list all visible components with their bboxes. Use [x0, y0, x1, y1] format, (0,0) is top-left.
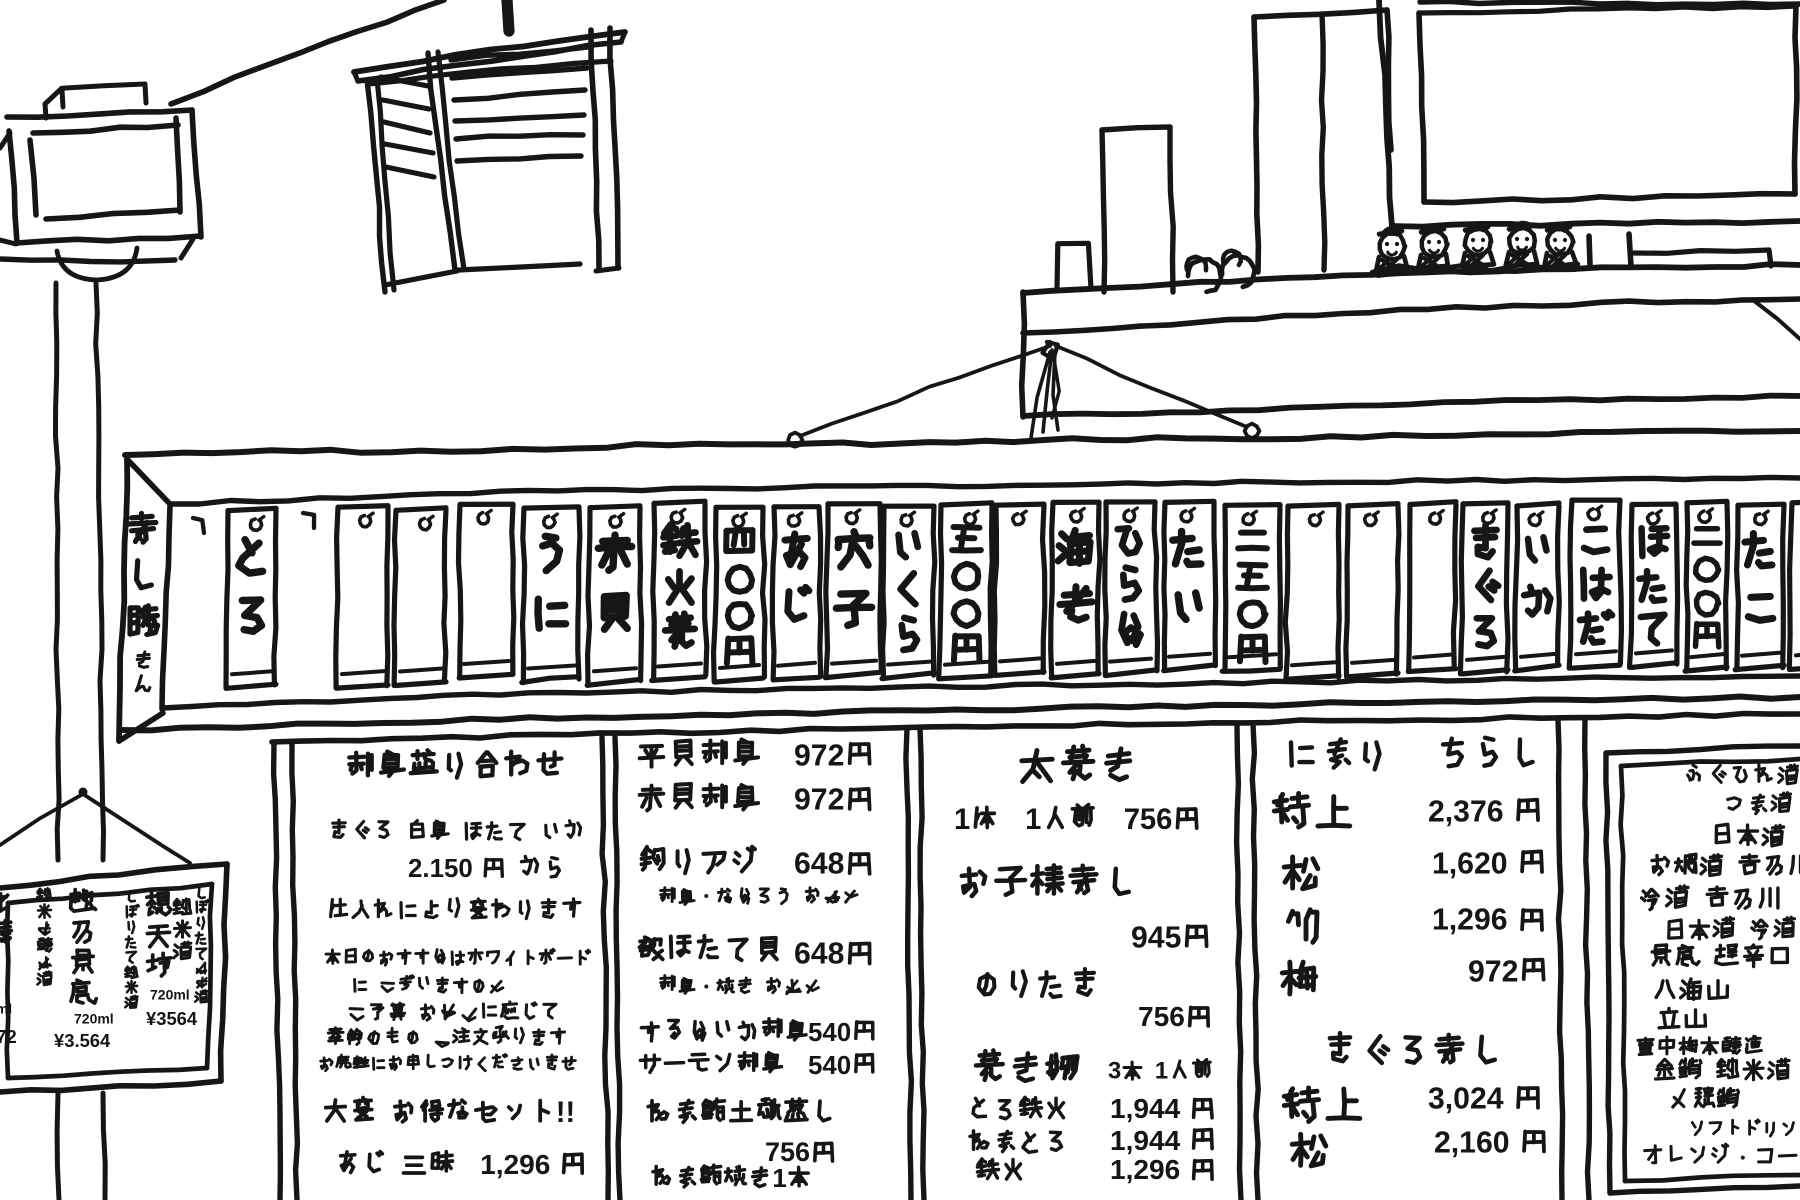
svg-text:1,944: 1,944: [1110, 1125, 1181, 1156]
svg-text:972: 972: [794, 784, 844, 817]
svg-text:1: 1: [1025, 804, 1041, 836]
svg-text:1: 1: [1155, 1057, 1168, 1084]
svg-text:0ml: 0ml: [0, 1000, 12, 1016]
svg-text:1: 1: [772, 1165, 786, 1193]
svg-text:1,296: 1,296: [480, 1149, 550, 1180]
svg-text:972: 972: [794, 740, 844, 773]
svg-text:1,296: 1,296: [1432, 904, 1508, 937]
svg-text:720ml: 720ml: [74, 1010, 114, 1026]
svg-text:¥3564: ¥3564: [146, 1008, 198, 1029]
svg-text:2.150: 2.150: [408, 855, 473, 883]
svg-text:3,024: 3,024: [1428, 1083, 1504, 1116]
svg-text:945: 945: [1131, 922, 1181, 955]
svg-text:3: 3: [1108, 1057, 1121, 1084]
svg-text:672: 672: [0, 1026, 17, 1047]
svg-text:648: 648: [794, 848, 844, 881]
svg-text:972: 972: [1468, 956, 1518, 989]
svg-text:1: 1: [954, 804, 970, 836]
svg-text:1,944: 1,944: [1110, 1093, 1181, 1124]
svg-text:1,296: 1,296: [1110, 1154, 1180, 1185]
svg-text:648: 648: [794, 938, 844, 971]
svg-text:756: 756: [1138, 1001, 1185, 1032]
svg-text:¥3.564: ¥3.564: [54, 1030, 111, 1051]
svg-text:2,160: 2,160: [1434, 1127, 1510, 1160]
svg-text:!!: !!: [556, 1097, 575, 1129]
svg-text:756: 756: [1124, 804, 1173, 836]
svg-text:756: 756: [765, 1137, 810, 1167]
svg-text:1,620: 1,620: [1432, 848, 1508, 881]
svg-text:720ml: 720ml: [150, 986, 190, 1002]
svg-text:540: 540: [808, 1019, 851, 1047]
svg-text:540: 540: [808, 1052, 851, 1080]
svg-text:2,376: 2,376: [1428, 796, 1504, 829]
